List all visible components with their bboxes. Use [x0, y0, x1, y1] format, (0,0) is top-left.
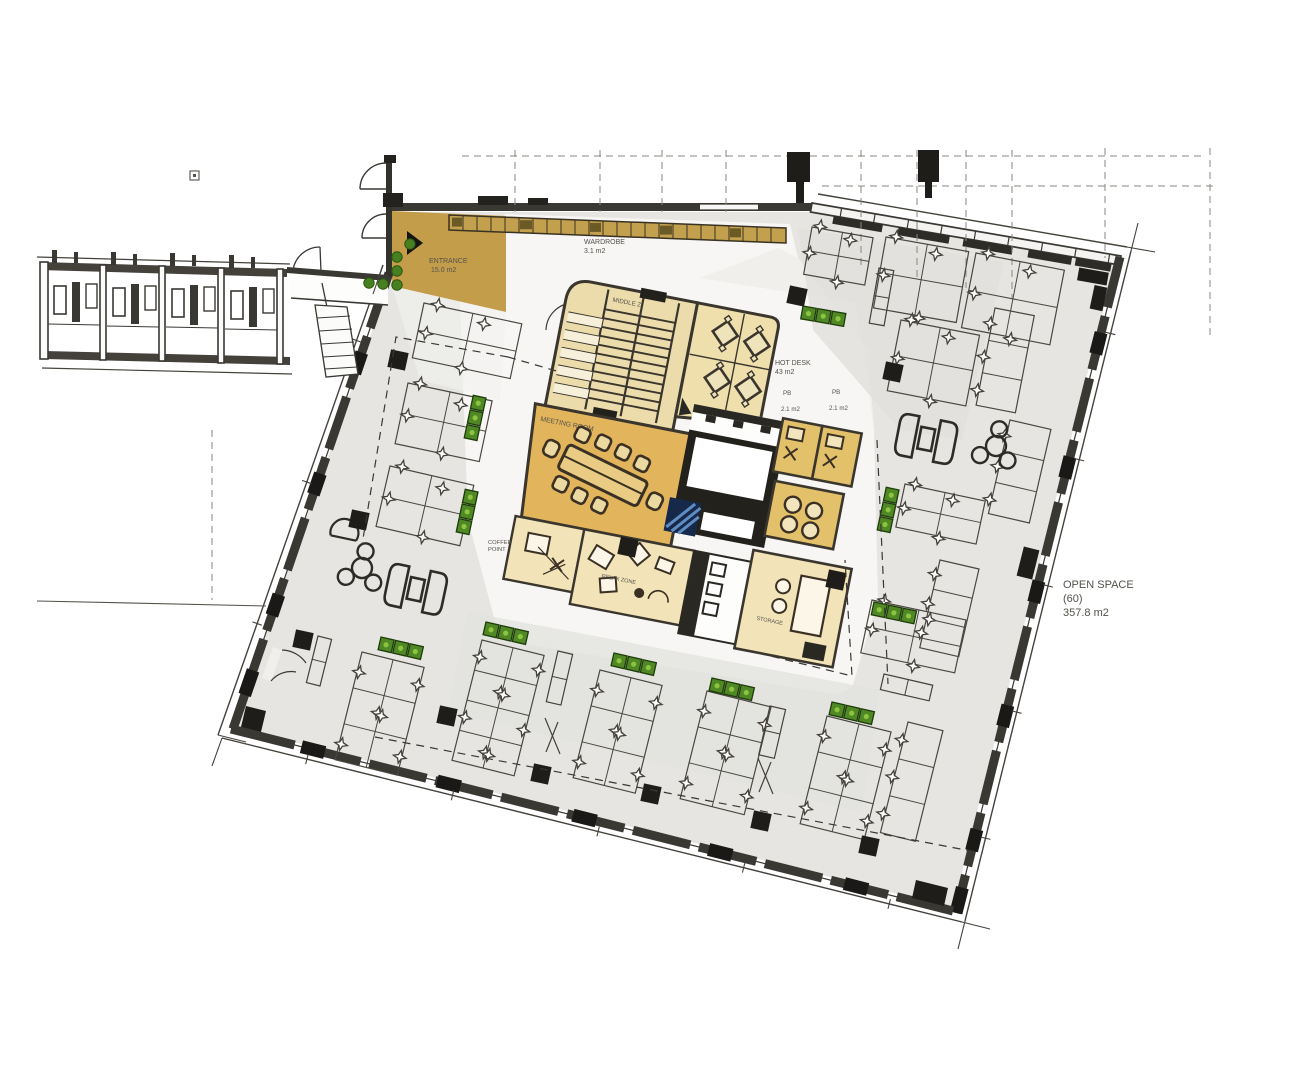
- svg-text:PB: PB: [783, 390, 791, 397]
- svg-text:COFFEE: COFFEE: [488, 540, 512, 546]
- svg-text:OPEN SPACE: OPEN SPACE: [1063, 579, 1134, 591]
- svg-text:PB: PB: [832, 389, 840, 396]
- svg-text:POINT: POINT: [488, 547, 506, 553]
- svg-text:3.1 m2: 3.1 m2: [584, 248, 606, 255]
- svg-text:43 m2: 43 m2: [775, 369, 795, 376]
- svg-text:15.0 m2: 15.0 m2: [431, 267, 456, 274]
- svg-text:2.1 m2: 2.1 m2: [781, 406, 800, 413]
- svg-text:2.1 m2: 2.1 m2: [829, 405, 848, 412]
- svg-text:ENTRANCE: ENTRANCE: [429, 258, 468, 265]
- svg-text:WARDROBE: WARDROBE: [584, 239, 625, 246]
- svg-text:(60): (60): [1063, 593, 1083, 605]
- svg-text:HOT DESK: HOT DESK: [775, 360, 811, 367]
- svg-text:357.8 m2: 357.8 m2: [1063, 607, 1109, 619]
